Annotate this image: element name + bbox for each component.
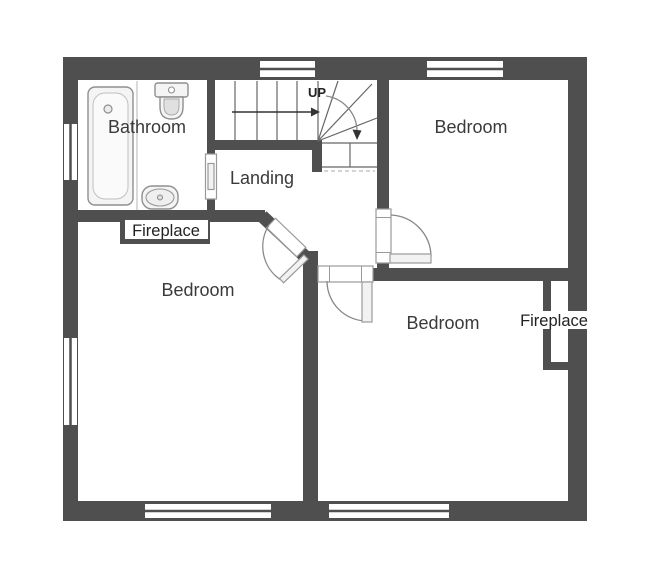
interior-walls: [63, 80, 568, 501]
fireplace-right-label-group: Fireplace: [516, 311, 593, 330]
arrow-head-right-icon: [311, 108, 320, 117]
wall-right: [568, 57, 587, 521]
wall-horizontal-left-stub: [303, 268, 319, 281]
wall-bottom: [63, 501, 587, 521]
bathroom-fixtures: [88, 81, 188, 210]
bedroom-top-right-door: [376, 209, 431, 263]
window-icon: [427, 61, 503, 77]
landing-label: Landing: [230, 168, 294, 188]
bedroom-bottom-door: [318, 266, 373, 322]
sink-icon: [142, 186, 178, 209]
window-icon: [329, 504, 449, 518]
wall-top: [63, 57, 587, 80]
wall-bathroom-landing-lower: [207, 199, 215, 210]
fireplace-right-label: Fireplace: [520, 312, 588, 330]
bathtub-icon: [88, 87, 133, 205]
toilet-icon: [155, 83, 188, 119]
fireplace-left-label: Fireplace: [132, 222, 200, 240]
wall-horizontal-main: [373, 268, 568, 281]
window-icon: [64, 338, 77, 425]
wall-stair-stub: [312, 140, 322, 172]
arrow-head-down-icon: [353, 130, 362, 141]
bedroom-left-door: [263, 218, 308, 282]
stairs-up-label: UP: [308, 85, 326, 100]
window-icon: [64, 124, 77, 180]
staircase: UP: [232, 81, 377, 171]
window-icon: [145, 504, 271, 518]
floor-plan: UP: [0, 0, 650, 586]
stair-treads: [235, 81, 377, 171]
wall-bedroom-divider-vertical: [303, 251, 318, 501]
fireplace-left-label-group: Fireplace: [125, 220, 208, 240]
bedroom-left-label: Bedroom: [161, 280, 234, 300]
window-icon: [260, 61, 315, 77]
wall-bathroom-landing-upper: [207, 80, 215, 154]
bathroom-door: [206, 154, 217, 199]
bathroom-label: Bathroom: [108, 117, 186, 137]
floor-plan-drawing: UP: [0, 0, 650, 586]
wall-under-stairs: [215, 140, 322, 150]
bedroom-bottom-label: Bedroom: [406, 313, 479, 333]
bedroom-top-right-label: Bedroom: [434, 117, 507, 137]
wall-landing-bedroom-upper: [377, 80, 389, 210]
fireplace-right-bottom: [543, 362, 568, 370]
